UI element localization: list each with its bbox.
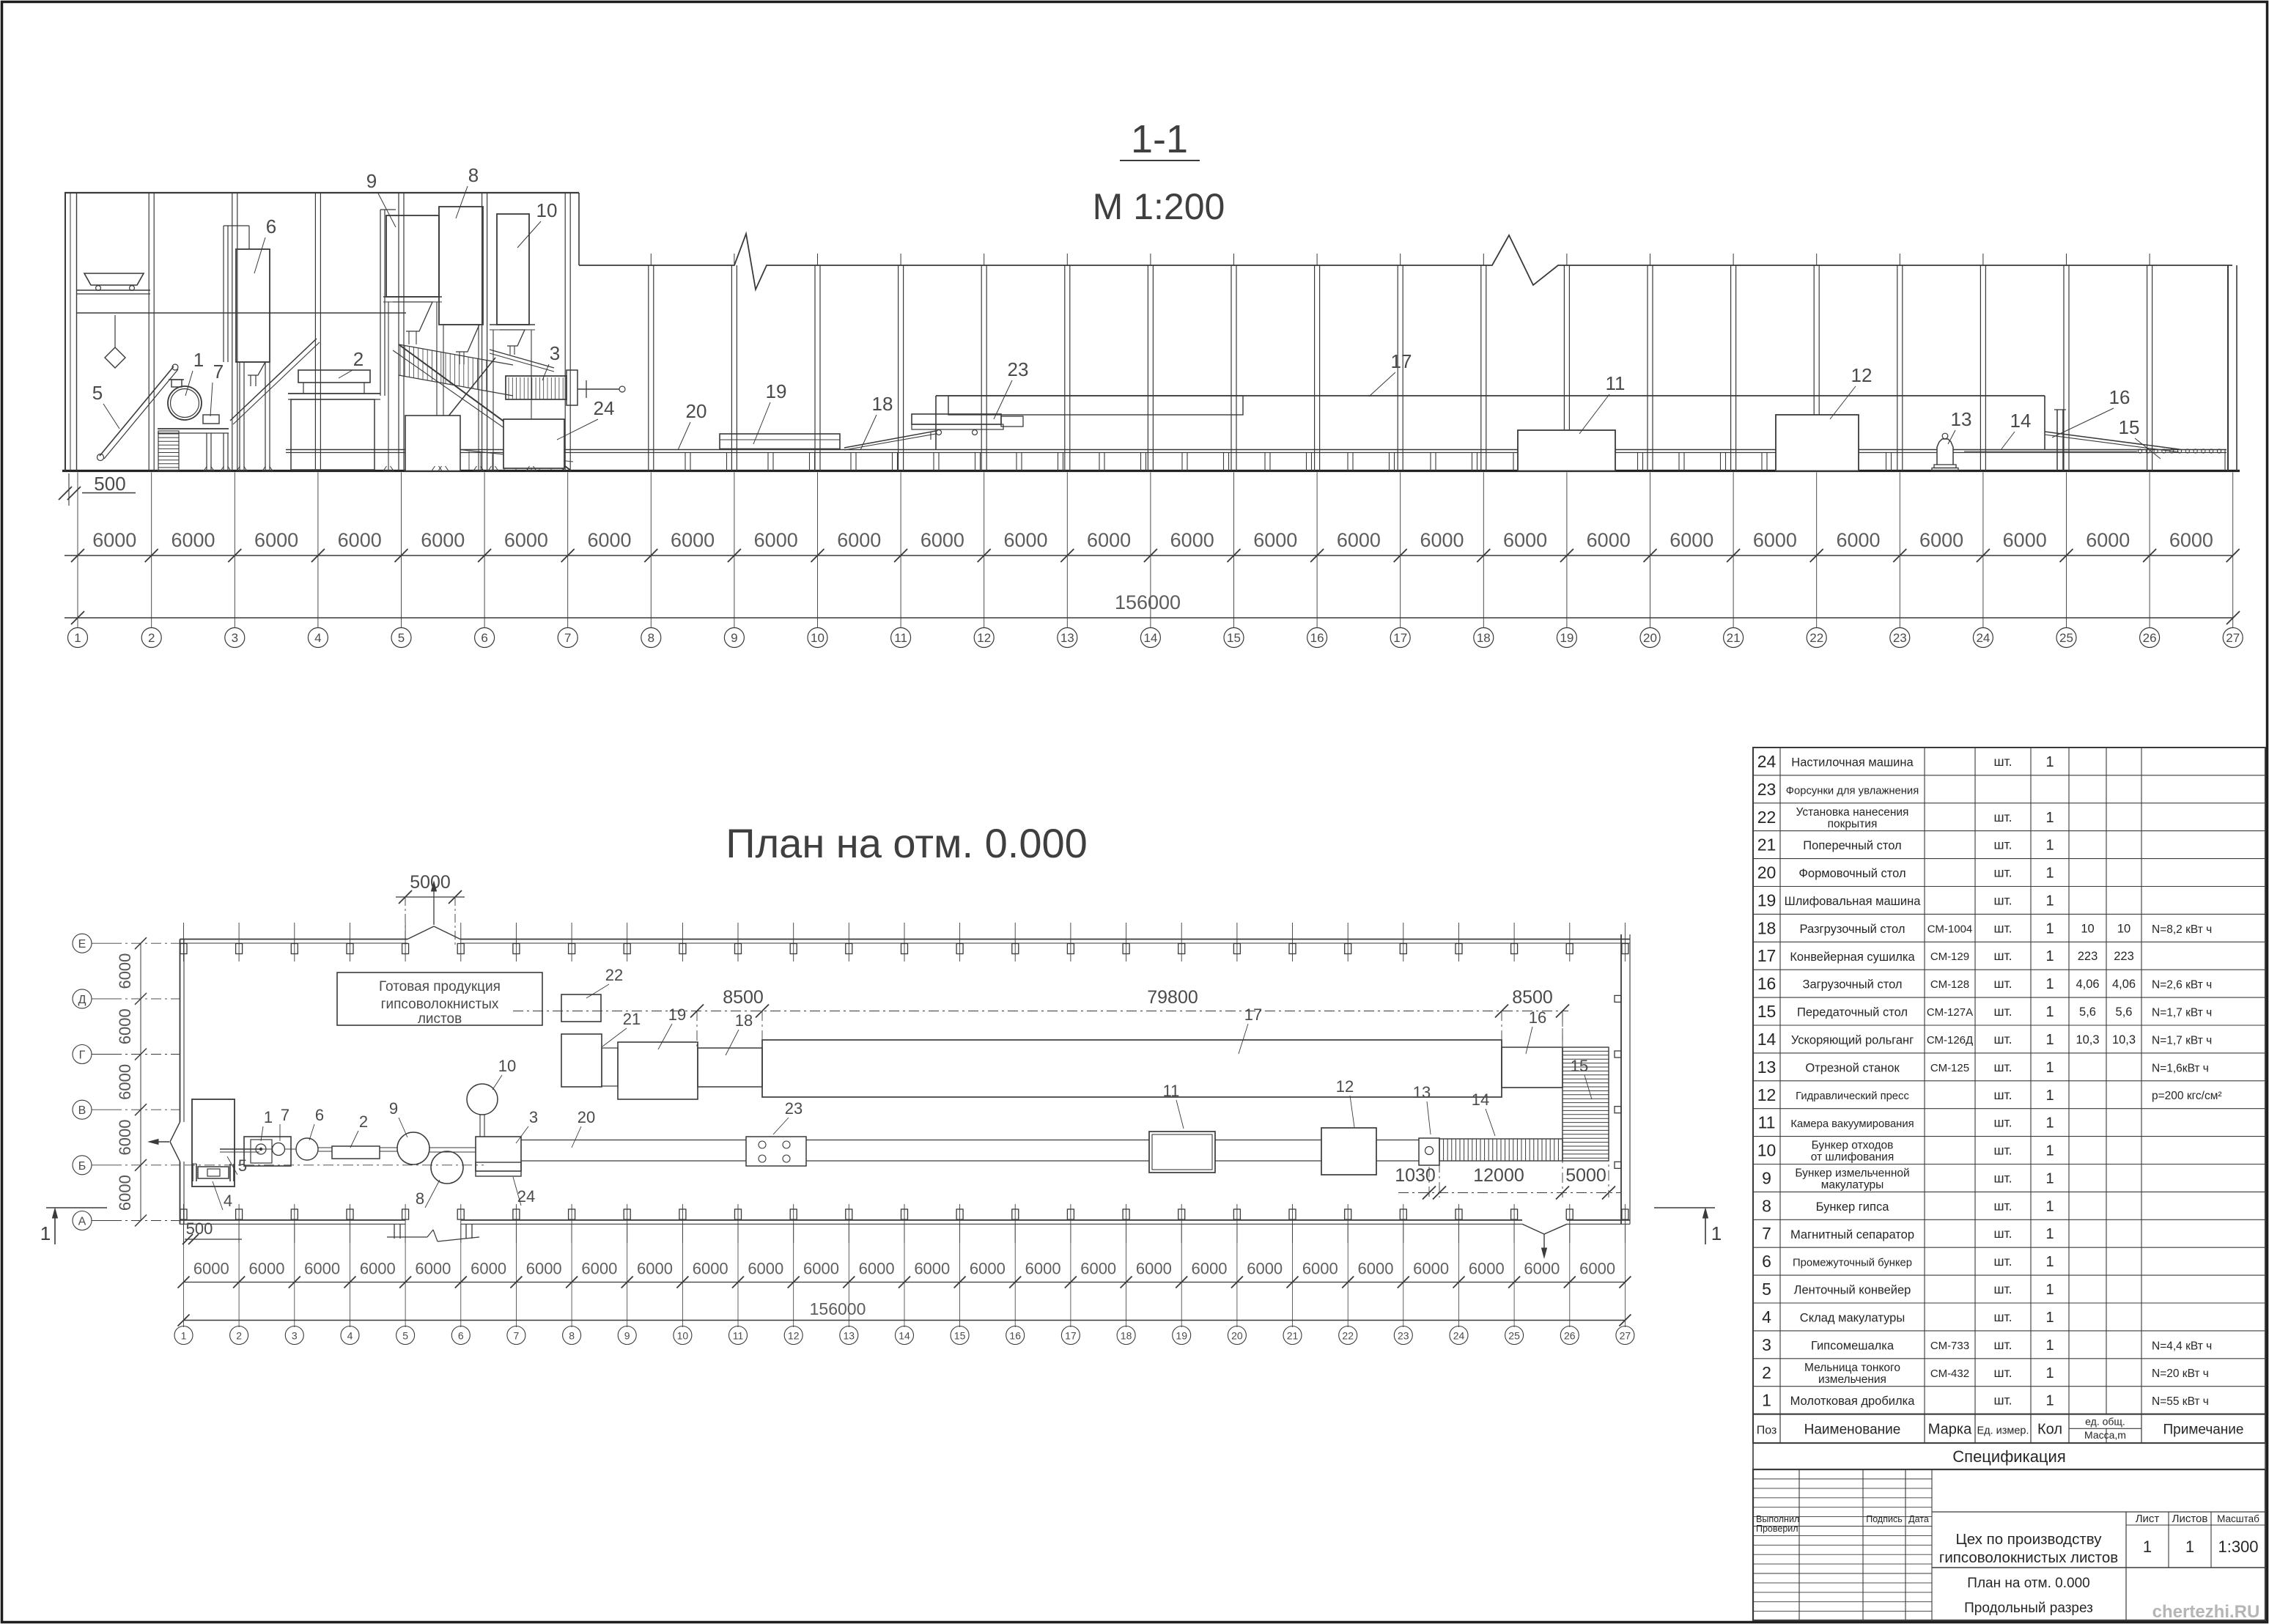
svg-text:1: 1 [2045,754,2054,770]
svg-text:1: 1 [2045,1393,2054,1409]
svg-text:8500: 8500 [1512,987,1553,1008]
svg-text:5,6: 5,6 [2079,1005,2096,1019]
svg-text:6000: 6000 [1080,1260,1116,1278]
svg-text:1: 1 [264,1108,273,1126]
svg-text:10: 10 [536,199,558,221]
svg-text:1: 1 [2045,1060,2054,1076]
svg-text:3: 3 [232,631,238,645]
svg-text:макулатуры: макулатуры [1821,1179,1884,1192]
svg-text:22: 22 [1757,808,1777,827]
svg-text:2: 2 [359,1112,368,1131]
svg-text:3: 3 [550,342,560,364]
svg-text:9: 9 [1762,1169,1771,1188]
svg-text:Отрезной станок: Отрезной станок [1805,1061,1900,1074]
svg-text:6000: 6000 [338,529,382,551]
svg-text:СМ-127А: СМ-127А [1927,1006,1973,1019]
svg-text:6000: 6000 [1170,529,1214,551]
svg-text:11: 11 [733,1330,744,1342]
svg-text:6000: 6000 [1358,1260,1394,1278]
svg-text:шт.: шт. [1994,1226,2012,1241]
svg-text:Передаточный стол: Передаточный стол [1797,1006,1908,1019]
svg-text:Бункер гипса: Бункер гипса [1816,1200,1890,1214]
svg-text:15: 15 [954,1330,966,1342]
svg-text:17: 17 [1393,631,1407,645]
svg-text:6000: 6000 [1413,1260,1449,1278]
svg-text:шт.: шт. [1994,1115,2012,1130]
svg-text:14: 14 [1472,1090,1489,1109]
svg-text:23: 23 [785,1099,803,1118]
svg-text:17: 17 [1065,1330,1077,1342]
svg-text:1: 1 [2045,1282,2054,1298]
svg-text:20: 20 [1757,863,1777,882]
svg-text:14: 14 [1143,631,1157,645]
svg-text:6000: 6000 [1192,1260,1228,1278]
svg-text:Камера вакуумирования: Камера вакуумирования [1790,1118,1914,1130]
svg-text:шт.: шт. [1994,1171,2012,1186]
svg-text:79800: 79800 [1147,987,1198,1008]
svg-text:19: 19 [766,380,787,402]
svg-text:1030: 1030 [1395,1165,1436,1186]
svg-text:Дата: Дата [1908,1514,1929,1524]
svg-text:А: А [78,1216,86,1228]
svg-text:12: 12 [977,631,991,645]
svg-text:6000: 6000 [920,529,964,551]
svg-text:11: 11 [1758,1113,1776,1132]
svg-text:Выполнил: Выполнил [1756,1514,1799,1524]
svg-text:Ленточный конвейер: Ленточный конвейер [1794,1284,1911,1297]
svg-text:шт.: шт. [1994,838,2012,852]
svg-text:1: 1 [193,349,204,371]
svg-text:5: 5 [402,1330,408,1342]
svg-text:6000: 6000 [1670,529,1713,551]
svg-text:5: 5 [1762,1280,1771,1299]
svg-text:6000: 6000 [970,1260,1006,1278]
svg-text:8500: 8500 [723,987,764,1008]
svg-text:Масса,m: Масса,m [2084,1429,2126,1441]
svg-text:шт.: шт. [1994,754,2012,769]
svg-text:9: 9 [731,631,737,645]
svg-text:10,3: 10,3 [2076,1033,2099,1047]
svg-text:6: 6 [315,1106,324,1124]
svg-text:9: 9 [624,1330,630,1342]
svg-text:156000: 156000 [1115,591,1181,613]
svg-text:13: 13 [1413,1083,1431,1101]
svg-text:1: 1 [2045,1337,2054,1354]
svg-text:6000: 6000 [1337,529,1381,551]
svg-text:17: 17 [1757,946,1777,965]
svg-text:1: 1 [2045,1365,2054,1381]
svg-text:27: 27 [1620,1330,1631,1342]
svg-text:Разгрузочный стол: Разгрузочный стол [1800,923,1905,936]
svg-text:1: 1 [2143,1538,2152,1556]
svg-text:шт.: шт. [1994,1310,2012,1324]
svg-text:7: 7 [281,1106,289,1124]
svg-text:12: 12 [1336,1077,1354,1096]
svg-text:шт.: шт. [1994,1254,2012,1269]
svg-text:156000: 156000 [810,1299,866,1318]
svg-text:СМ-126Д: СМ-126Д [1927,1034,1973,1047]
svg-text:20: 20 [686,400,707,422]
svg-text:Листов: Листов [2172,1513,2208,1525]
svg-text:6000: 6000 [693,1260,728,1278]
svg-text:1: 1 [2045,920,2054,937]
svg-text:шт.: шт. [1994,1143,2012,1158]
svg-text:19: 19 [1560,631,1573,645]
svg-text:24: 24 [594,397,615,419]
svg-text:16: 16 [1529,1008,1546,1027]
svg-text:23: 23 [1757,780,1777,799]
svg-text:6000: 6000 [304,1260,340,1278]
svg-text:20: 20 [1643,631,1657,645]
svg-text:1: 1 [2045,1226,2054,1242]
svg-text:16: 16 [1009,1330,1021,1342]
svg-text:5000: 5000 [1565,1165,1606,1186]
svg-text:11: 11 [1163,1082,1180,1100]
svg-text:p=200 кгс/см²: p=200 кгс/см² [2152,1090,2222,1102]
svg-text:1: 1 [2045,1004,2054,1020]
svg-text:1: 1 [2045,1032,2054,1048]
svg-text:Г: Г [79,1049,86,1062]
svg-text:Бункер отходов: Бункер отходов [1812,1140,1894,1152]
svg-text:20: 20 [578,1108,595,1126]
svg-text:2: 2 [1762,1363,1771,1382]
svg-text:Лист: Лист [2136,1513,2160,1525]
svg-text:19: 19 [668,1005,686,1024]
svg-text:1: 1 [2045,810,2054,826]
svg-text:Марка: Марка [1928,1421,1972,1437]
svg-text:16: 16 [1757,974,1777,993]
svg-text:шт.: шт. [1994,1060,2012,1074]
svg-text:Загрузочный стол: Загрузочный стол [1802,978,1902,992]
svg-text:N=1,6кВт ч: N=1,6кВт ч [2152,1062,2209,1074]
svg-text:24: 24 [1757,752,1777,771]
svg-text:М 1:200: М 1:200 [1093,186,1225,227]
svg-text:Формовочный стол: Формовочный стол [1798,867,1905,880]
svg-text:21: 21 [623,1010,641,1028]
svg-text:шт.: шт. [1994,1088,2012,1102]
svg-text:6000: 6000 [116,1120,134,1156]
svg-text:6000: 6000 [748,1260,783,1278]
svg-text:6000: 6000 [1136,1260,1172,1278]
svg-text:6000: 6000 [116,1008,134,1044]
svg-text:СМ-128: СМ-128 [1930,978,1969,991]
svg-text:7: 7 [514,1330,520,1342]
svg-text:chertezhi.RU: chertezhi.RU [2152,1602,2260,1622]
svg-text:1: 1 [2045,1088,2054,1104]
svg-text:Форсунки для увлажнения: Форсунки для увлажнения [1786,785,1919,797]
svg-text:18: 18 [1477,631,1491,645]
svg-text:10: 10 [677,1330,689,1342]
svg-text:6000: 6000 [637,1260,673,1278]
svg-text:8: 8 [569,1330,575,1342]
svg-text:6000: 6000 [859,1260,895,1278]
svg-text:6000: 6000 [92,529,136,551]
svg-text:22: 22 [1342,1330,1354,1342]
svg-text:шт.: шт. [1994,1365,2012,1380]
svg-text:23: 23 [1398,1330,1409,1342]
svg-text:шт.: шт. [1994,1004,2012,1019]
svg-text:шт.: шт. [1994,1282,2012,1296]
svg-text:Установка нанесения: Установка нанесения [1796,806,1909,819]
svg-text:листов: листов [418,1011,462,1027]
svg-text:19: 19 [1757,891,1777,910]
svg-text:18: 18 [872,393,893,415]
svg-text:измельчения: измельчения [1818,1373,1886,1386]
svg-text:15: 15 [1571,1057,1588,1075]
svg-text:6: 6 [458,1330,464,1342]
svg-text:6000: 6000 [1247,1260,1283,1278]
svg-text:4: 4 [347,1330,353,1342]
svg-text:Бункер измельченной: Бункер измельченной [1795,1167,1909,1180]
svg-text:6000: 6000 [1836,529,1880,551]
svg-text:6: 6 [266,215,276,237]
svg-text:6000: 6000 [754,529,798,551]
svg-text:2: 2 [236,1330,242,1342]
svg-text:5: 5 [238,1156,247,1175]
svg-text:10: 10 [2117,922,2130,935]
svg-text:шт.: шт. [1994,1337,2012,1352]
svg-text:16: 16 [1310,631,1324,645]
svg-text:Шлифовальная машина: Шлифовальная машина [1785,895,1922,908]
svg-text:14: 14 [1757,1030,1777,1049]
svg-text:Настилочная машина: Настилочная машина [1791,756,1914,769]
svg-text:Готовая продукция: Готовая продукция [379,979,501,994]
svg-text:Поперечный стол: Поперечный стол [1803,839,1901,852]
svg-text:1:300: 1:300 [2218,1538,2258,1556]
svg-text:6000: 6000 [116,1175,134,1211]
svg-text:6000: 6000 [1302,1260,1338,1278]
svg-text:26: 26 [1564,1330,1576,1342]
svg-text:В: В [78,1104,86,1117]
svg-text:от шлифования: от шлифования [1811,1151,1894,1164]
svg-text:6000: 6000 [254,529,298,551]
svg-text:1: 1 [2045,948,2054,964]
svg-text:22: 22 [605,966,623,984]
svg-text:18: 18 [1121,1330,1132,1342]
svg-text:СМ-733: СМ-733 [1930,1340,1969,1352]
svg-text:шт.: шт. [1994,1393,2012,1408]
svg-text:1: 1 [1711,1222,1722,1244]
svg-text:500: 500 [94,473,125,495]
svg-text:Склад макулатуры: Склад макулатуры [1800,1312,1905,1325]
svg-text:6000: 6000 [360,1260,396,1278]
svg-text:6000: 6000 [581,1260,617,1278]
svg-text:24: 24 [1976,631,1990,645]
svg-text:6000: 6000 [1579,1260,1615,1278]
svg-text:1: 1 [2045,1143,2054,1159]
svg-text:Магнитный сепаратор: Магнитный сепаратор [1790,1228,1914,1241]
svg-text:22: 22 [1809,631,1823,645]
svg-text:1: 1 [40,1222,51,1244]
svg-text:1: 1 [2185,1538,2194,1556]
svg-text:10: 10 [811,631,824,645]
svg-text:N=8,2 кВт ч: N=8,2 кВт ч [2152,923,2212,936]
svg-text:1: 1 [2045,893,2054,909]
svg-text:6000: 6000 [803,1260,839,1278]
svg-text:15: 15 [1757,1002,1777,1021]
svg-text:3: 3 [292,1330,298,1342]
svg-text:шт.: шт. [1994,810,2012,824]
svg-text:8: 8 [1762,1196,1771,1215]
svg-text:6000: 6000 [421,529,465,551]
svg-text:1: 1 [2045,1171,2054,1187]
svg-text:6000: 6000 [526,1260,562,1278]
svg-text:20: 20 [1231,1330,1243,1342]
svg-text:Подпись: Подпись [1866,1514,1902,1524]
svg-text:21: 21 [1757,835,1777,855]
svg-text:шт.: шт. [1994,920,2012,935]
svg-text:Е: Е [78,938,86,951]
svg-text:11: 11 [894,631,907,645]
svg-text:Мельница тонкого: Мельница тонкого [1804,1362,1900,1374]
svg-text:покрытия: покрытия [1828,818,1878,830]
svg-text:Ед. измер.: Ед. измер. [1977,1425,2029,1436]
svg-text:6000: 6000 [1003,529,1047,551]
svg-text:5,6: 5,6 [2116,1005,2133,1019]
svg-text:Проверил: Проверил [1756,1524,1798,1534]
svg-text:шт.: шт. [1994,893,2012,908]
svg-text:Промежуточный бункер: Промежуточный бункер [1793,1258,1912,1269]
svg-text:7: 7 [213,361,224,383]
svg-text:12: 12 [1757,1085,1777,1104]
svg-text:1: 1 [2045,1310,2054,1326]
svg-text:N=1,7 кВт ч: N=1,7 кВт ч [2152,1035,2212,1047]
svg-text:6000: 6000 [1025,1260,1061,1278]
svg-text:9: 9 [366,170,377,192]
svg-text:N=1,7 кВт ч: N=1,7 кВт ч [2152,1007,2212,1019]
svg-text:10,3: 10,3 [2112,1033,2136,1047]
svg-text:1: 1 [2045,1115,2054,1132]
svg-text:13: 13 [1060,631,1074,645]
svg-text:2: 2 [353,348,364,370]
svg-text:СМ-125: СМ-125 [1930,1062,1969,1074]
svg-text:6: 6 [1762,1252,1771,1271]
svg-text:6000: 6000 [587,529,631,551]
svg-text:Масштаб: Масштаб [2217,1513,2259,1524]
svg-text:15: 15 [2119,416,2140,438]
svg-text:6000: 6000 [1503,529,1547,551]
svg-text:6000: 6000 [171,529,215,551]
svg-text:24: 24 [1453,1330,1465,1342]
svg-text:СМ-432: СМ-432 [1930,1368,1969,1380]
svg-text:Гидравлический пресс: Гидравлический пресс [1796,1090,1909,1102]
svg-text:N=55 кВт ч: N=55 кВт ч [2152,1395,2209,1408]
svg-text:Ускоряющий рольганг: Ускоряющий рольганг [1791,1034,1914,1047]
svg-text:Спецификация: Спецификация [1952,1447,2065,1466]
svg-text:25: 25 [2059,631,2073,645]
svg-text:19: 19 [1176,1330,1187,1342]
svg-text:6000: 6000 [116,1064,134,1100]
svg-text:2: 2 [148,631,155,645]
svg-text:4: 4 [1762,1307,1771,1326]
svg-text:СМ-129: СМ-129 [1930,951,1969,963]
svg-text:6000: 6000 [1253,529,1297,551]
svg-text:13: 13 [1757,1058,1777,1077]
svg-text:6000: 6000 [837,529,881,551]
svg-text:шт.: шт. [1994,865,2012,880]
svg-text:Молотковая дробилка: Молотковая дробилка [1790,1395,1916,1408]
svg-text:18: 18 [1757,918,1777,937]
svg-text:18: 18 [735,1011,753,1030]
svg-text:СМ-1004: СМ-1004 [1927,923,1973,935]
svg-text:6000: 6000 [671,529,715,551]
svg-text:17: 17 [1391,350,1412,372]
svg-text:500: 500 [186,1219,213,1238]
svg-text:Б: Б [78,1160,86,1173]
svg-text:Поз: Поз [1757,1424,1777,1436]
svg-text:шт.: шт. [1994,1032,2012,1047]
svg-text:4: 4 [314,631,321,645]
svg-text:6000: 6000 [1087,529,1131,551]
svg-text:24: 24 [517,1187,535,1206]
svg-text:шт.: шт. [1994,1198,2012,1213]
svg-text:Кол: Кол [2037,1421,2062,1437]
svg-text:1-1: 1-1 [1131,117,1188,161]
svg-text:Продольный разрез: Продольный разрез [1964,1601,2093,1616]
svg-text:1: 1 [2045,1198,2054,1214]
svg-text:Цех по производству: Цех по производству [1956,1531,2103,1548]
svg-text:7: 7 [564,631,571,645]
svg-text:4,06: 4,06 [2076,978,2099,991]
svg-text:План на отм. 0.000: План на отм. 0.000 [726,820,1088,866]
svg-text:Примечание: Примечание [2163,1422,2244,1437]
svg-text:ед. общ.: ед. общ. [2085,1416,2125,1428]
svg-text:21: 21 [1727,631,1741,645]
svg-text:13: 13 [1951,408,1972,430]
svg-text:6000: 6000 [2086,529,2130,551]
svg-text:4: 4 [224,1192,232,1210]
svg-text:6000: 6000 [249,1260,285,1278]
svg-text:17: 17 [1244,1005,1262,1024]
svg-text:4,06: 4,06 [2112,978,2136,991]
svg-text:12: 12 [788,1330,800,1342]
svg-text:6000: 6000 [1420,529,1464,551]
svg-text:25: 25 [1508,1330,1520,1342]
svg-text:5: 5 [398,631,405,645]
svg-text:N=2,6 кВт ч: N=2,6 кВт ч [2152,979,2212,992]
svg-text:шт.: шт. [1994,948,2012,963]
svg-text:1: 1 [2045,865,2054,882]
svg-text:5: 5 [92,382,103,404]
svg-text:5000: 5000 [410,872,451,893]
svg-text:6000: 6000 [471,1260,506,1278]
svg-text:8: 8 [416,1189,424,1208]
svg-text:6000: 6000 [2169,529,2213,551]
svg-text:шт.: шт. [1994,976,2012,991]
svg-text:гипсоволокнистых листов: гипсоволокнистых листов [1939,1549,2118,1566]
svg-text:26: 26 [2143,631,2157,645]
svg-text:Конвейерная сушилка: Конвейерная сушилка [1790,951,1915,964]
svg-text:План на отм. 0.000: План на отм. 0.000 [1967,1576,2089,1591]
svg-text:14: 14 [899,1330,910,1342]
svg-text:Д: Д [78,994,86,1006]
svg-text:6000: 6000 [504,529,548,551]
svg-text:1: 1 [181,1330,187,1342]
svg-text:11: 11 [1606,372,1626,394]
svg-text:13: 13 [844,1330,855,1342]
svg-text:N=4,4 кВт ч: N=4,4 кВт ч [2152,1340,2212,1352]
svg-text:12000: 12000 [1473,1165,1524,1186]
svg-text:Наименование: Наименование [1804,1422,1901,1437]
svg-text:1: 1 [2045,976,2054,992]
svg-text:3: 3 [1762,1335,1771,1354]
svg-text:223: 223 [2114,950,2134,963]
svg-text:6000: 6000 [116,953,134,989]
svg-text:8: 8 [648,631,654,645]
svg-text:N=20 кВт ч: N=20 кВт ч [2152,1368,2209,1380]
svg-text:6000: 6000 [1587,529,1631,551]
svg-text:15: 15 [1227,631,1241,645]
